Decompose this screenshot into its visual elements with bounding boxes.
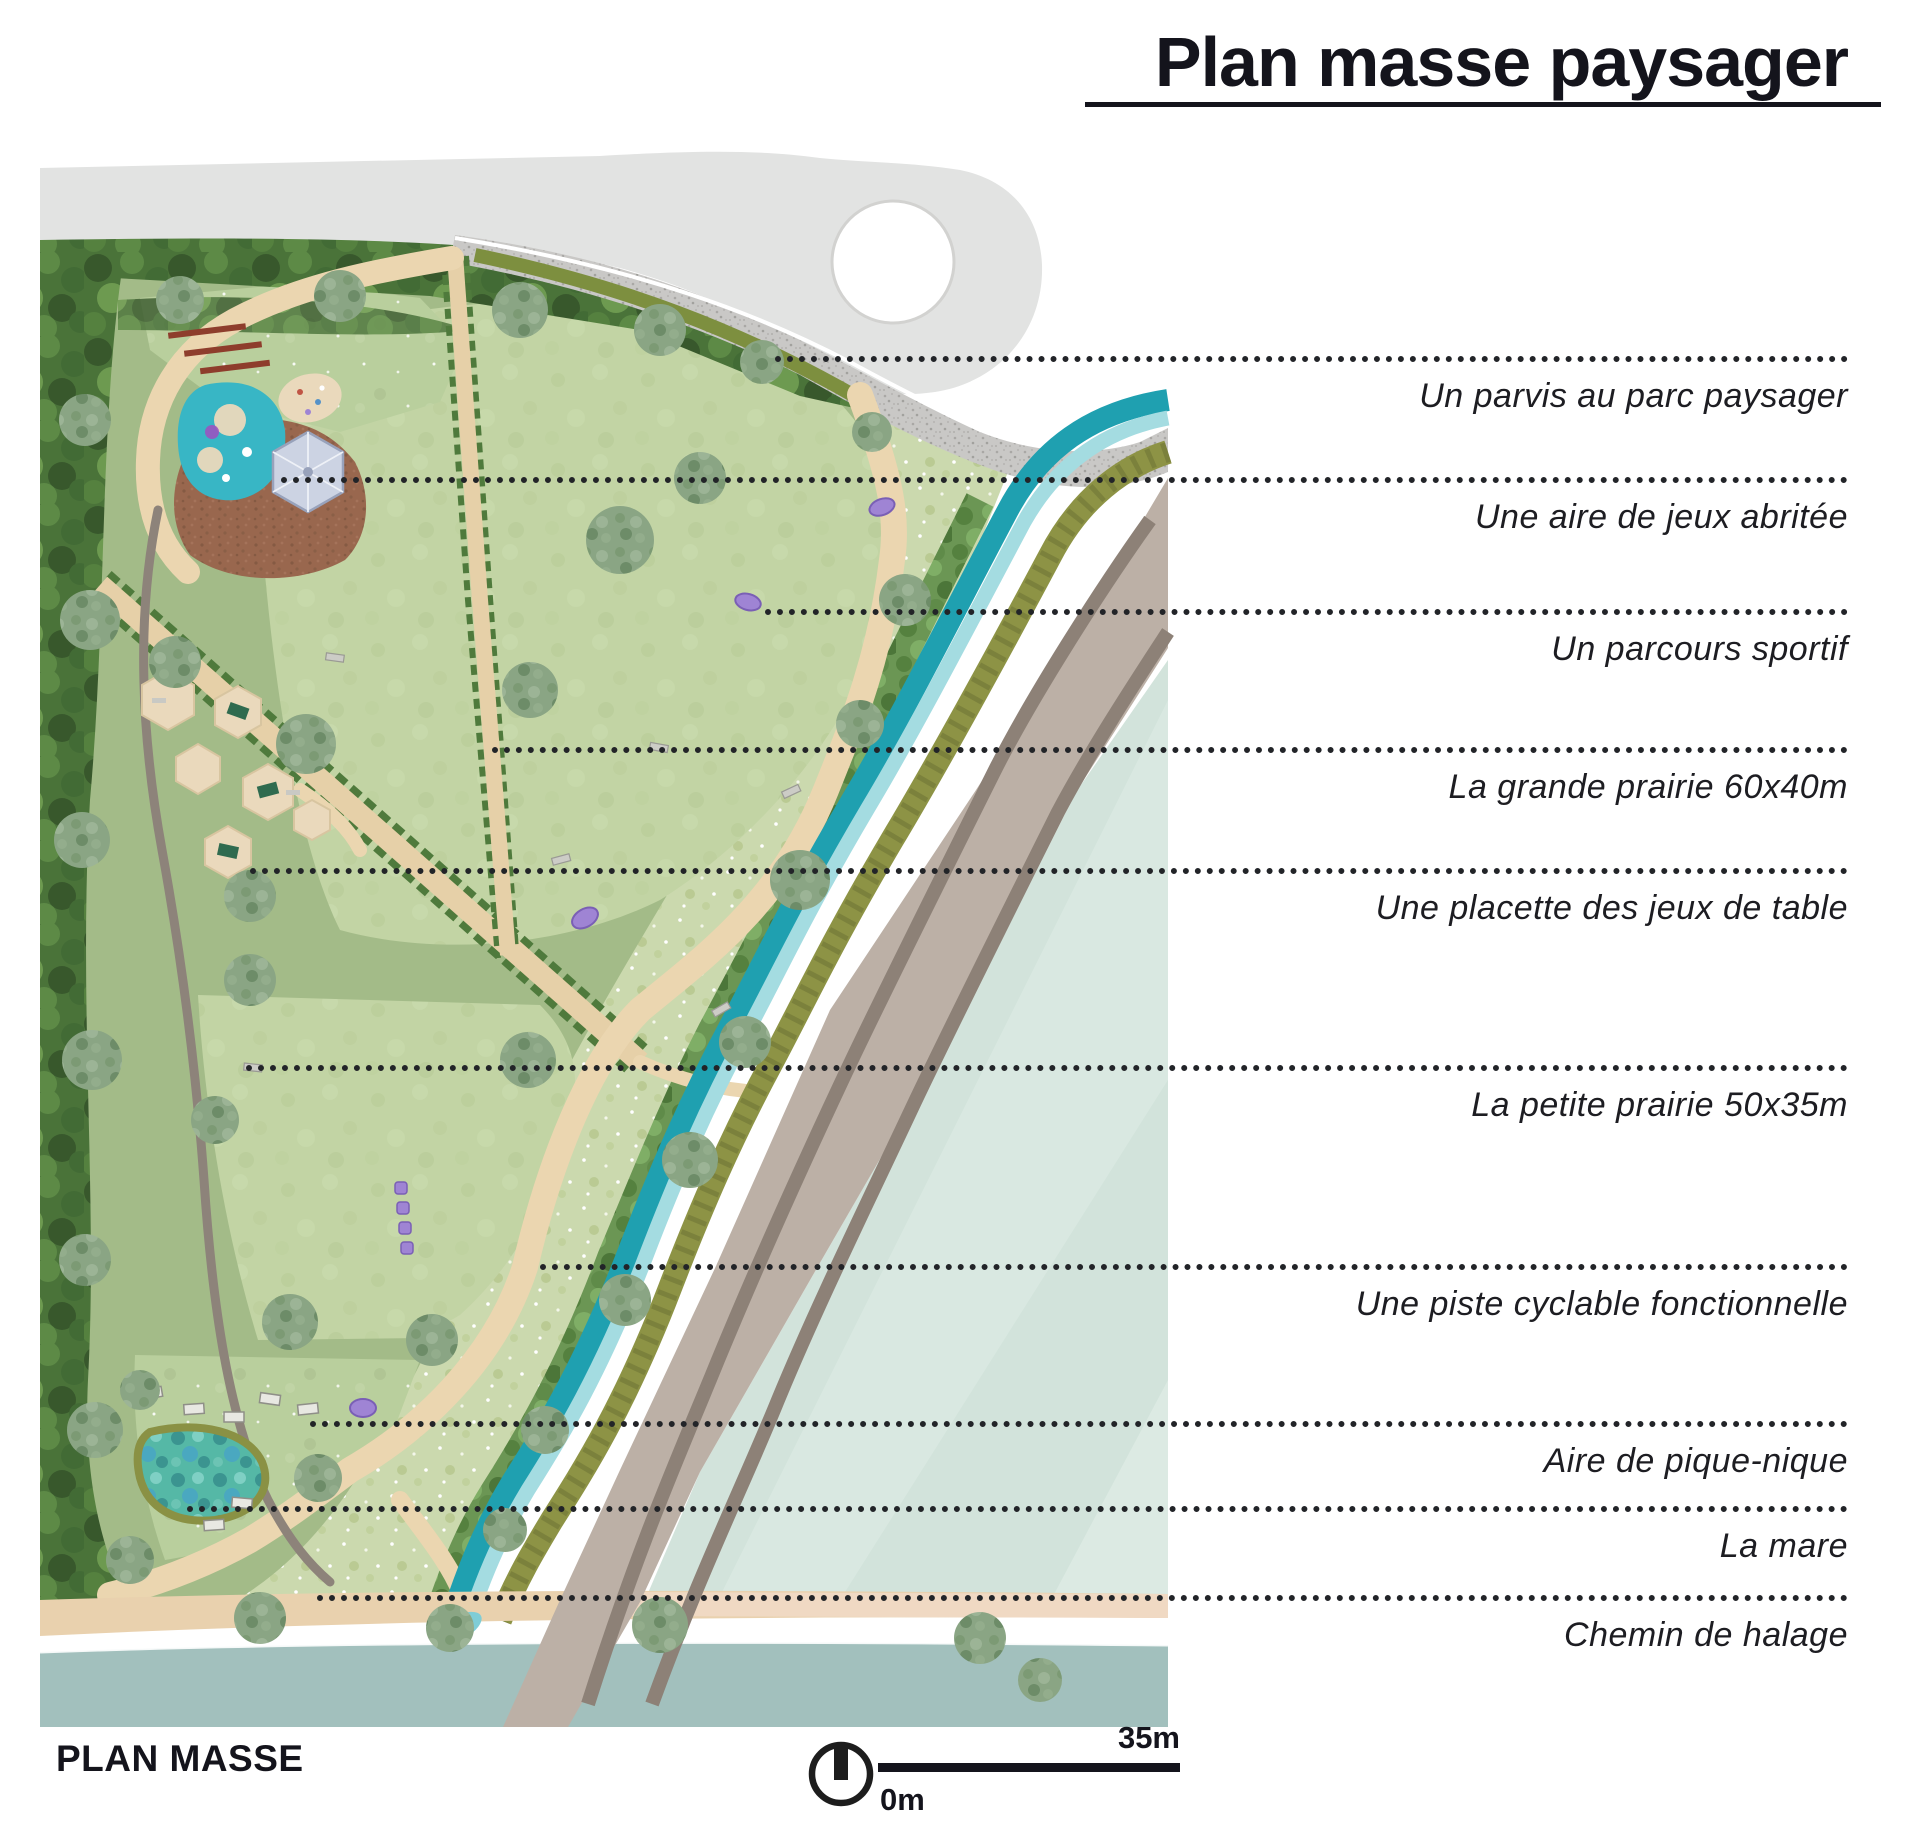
annotation-petite-prairie: La petite prairie 50x35m xyxy=(1471,1086,1848,1125)
scale-bar xyxy=(878,1763,1180,1772)
annotation-parvis: Un parvis au parc paysager xyxy=(1419,377,1848,416)
annotation-parcours-sportif: Un parcours sportif xyxy=(1551,630,1848,669)
leader-parvis xyxy=(775,356,1848,362)
scale-end-label: 35m xyxy=(1118,1720,1180,1756)
annotation-pique-nique: Aire de pique-nique xyxy=(1544,1442,1848,1481)
scale-start-label: 0m xyxy=(880,1782,925,1818)
leader-piste-cyclable xyxy=(540,1264,1848,1270)
plan-masse-label: PLAN MASSE xyxy=(56,1738,304,1780)
annotation-mare: La mare xyxy=(1720,1527,1848,1566)
north-arrow-icon xyxy=(812,1745,870,1803)
annotation-aire-de-jeux: Une aire de jeux abritée xyxy=(1475,498,1848,537)
annotation-halage: Chemin de halage xyxy=(1564,1616,1848,1655)
leader-grande-prairie xyxy=(492,747,1848,753)
leader-pique-nique xyxy=(310,1421,1848,1427)
page: Plan masse paysager Un parvis au parc pa… xyxy=(0,0,1920,1834)
leader-mare xyxy=(187,1506,1848,1512)
leader-placette xyxy=(250,868,1848,874)
leader-halage xyxy=(317,1595,1848,1601)
leader-parcours-sportif xyxy=(765,609,1848,615)
annotation-placette: Une placette des jeux de table xyxy=(1376,889,1848,928)
roundabout xyxy=(832,201,954,323)
leader-aire-de-jeux xyxy=(281,477,1848,483)
title-underline xyxy=(1085,102,1881,107)
annotation-grande-prairie: La grande prairie 60x40m xyxy=(1449,768,1848,807)
leader-petite-prairie xyxy=(246,1065,1848,1071)
water-play-area xyxy=(178,382,286,500)
page-title: Plan masse paysager xyxy=(1155,22,1848,102)
annotation-piste-cyclable: Une piste cyclable fonctionnelle xyxy=(1356,1285,1848,1324)
